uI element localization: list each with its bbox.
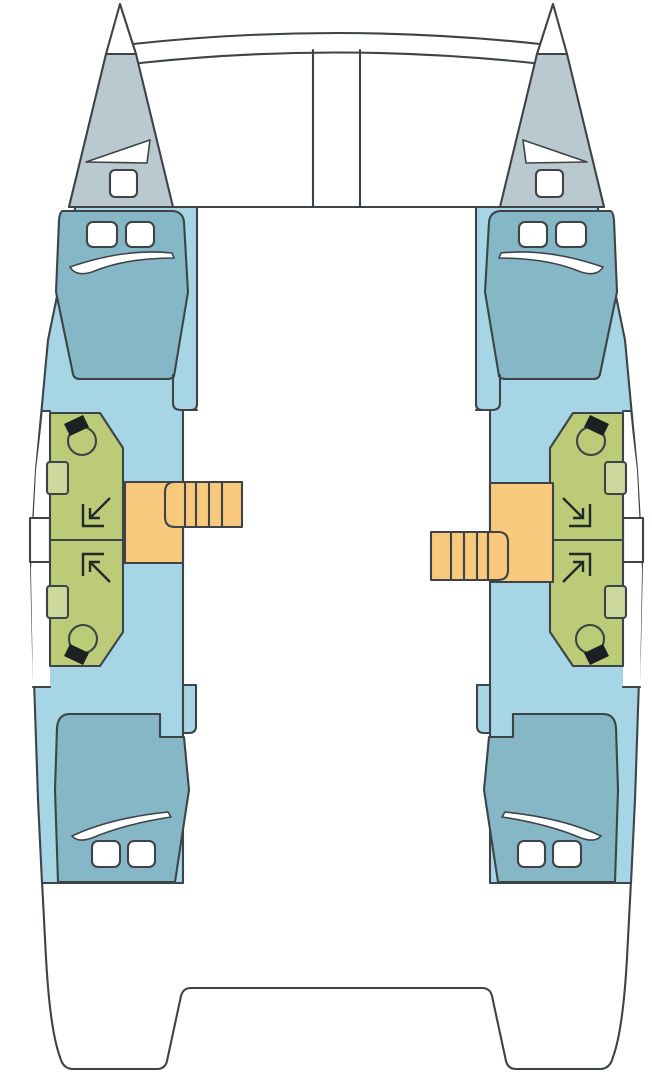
catamaran-floor-plan-svg [0,0,652,1080]
starboard-aft-pillow-left [518,841,545,867]
starboard-stairs-treads [431,532,490,580]
port-aft-companionway-step [183,685,196,733]
floor-plan [0,0,652,1080]
starboard-stairs-bottom-tread [488,532,508,580]
crossbeam-aft-line [140,53,533,64]
port-hull-door [30,518,50,562]
starboard-sink-aft [605,586,626,618]
port-aft-berth [55,714,189,882]
port-stairs-bottom-tread [165,482,185,527]
port-sink-aft [47,586,68,618]
port-bow-tip [106,4,136,54]
stern-transom-outline [42,881,631,1069]
port-forward-pillow-left [87,222,117,247]
starboard-hull-door [623,518,643,562]
port-aft-pillow-left [92,841,120,867]
starboard-forward-pillow-right [556,222,586,247]
crossbeam-forward-line [133,33,540,44]
starboard-hull [431,4,643,883]
starboard-aft-berth [484,714,618,882]
port-aft-pillow-right [128,841,155,867]
starboard-forward-pillow-left [519,222,547,247]
starboard-aft-pillow-right [553,841,581,867]
starboard-forward-berth [485,211,617,379]
port-sink-forward [47,462,68,494]
port-forward-pillow-right [126,222,154,247]
starboard-sink-forward [605,462,626,494]
starboard-aft-companionway-step [477,685,490,733]
port-stairs-treads [183,482,242,527]
port-hull [30,4,242,883]
starboard-deck-hatch [536,170,563,197]
starboard-bow-tip [537,4,567,54]
port-forward-berth [56,211,188,379]
port-deck-hatch [110,170,137,197]
trampoline-frame [133,33,540,207]
